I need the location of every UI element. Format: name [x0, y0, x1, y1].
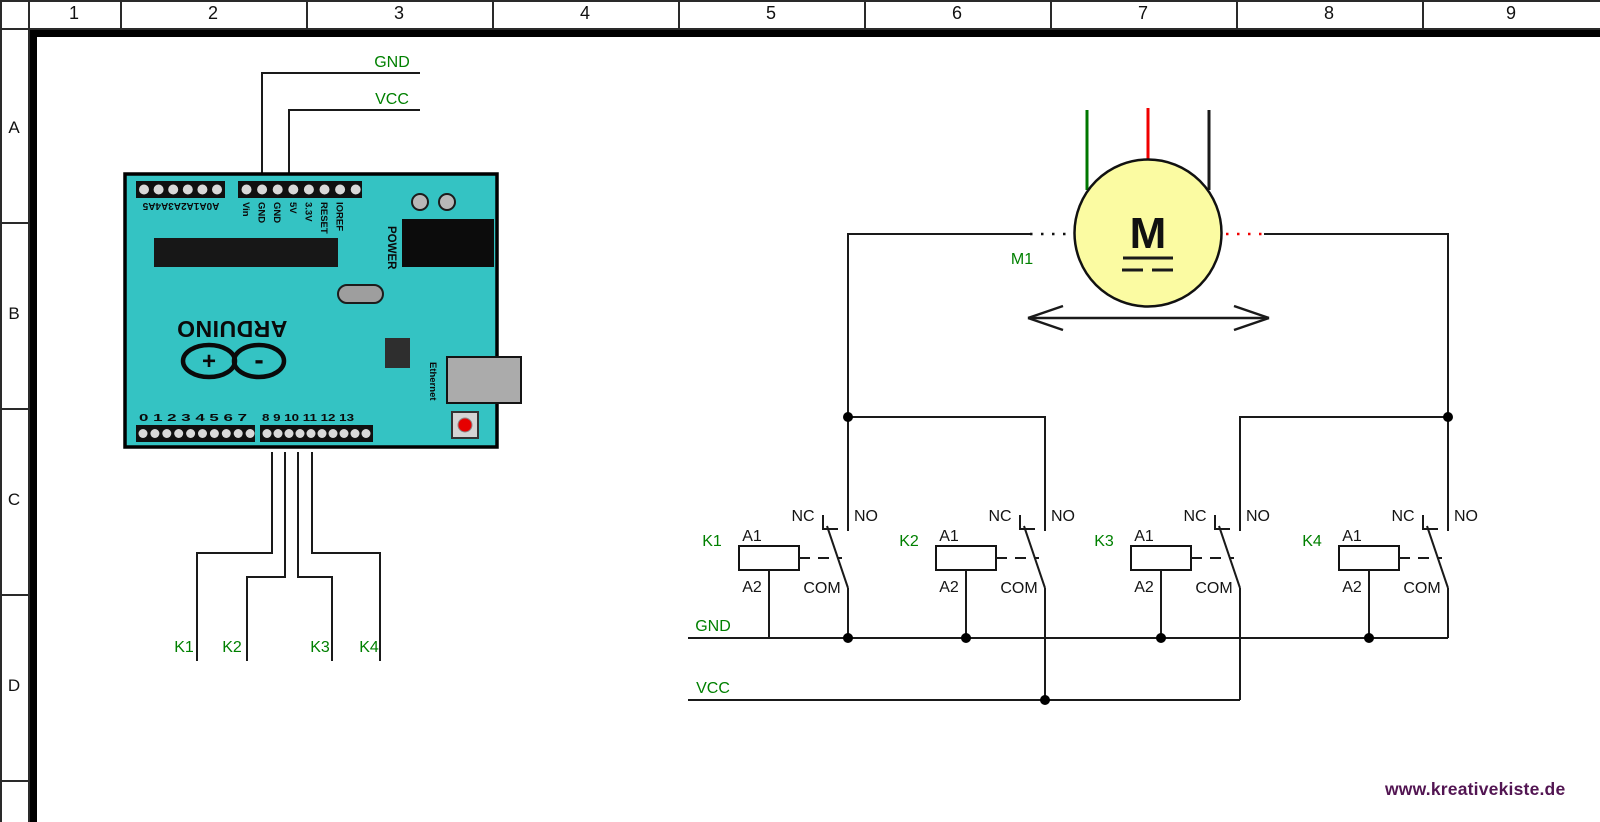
nc-contact [1020, 515, 1035, 529]
nc-label: NC [988, 508, 1011, 525]
wire-label-k1: K1 [174, 639, 194, 656]
pin-label-gnd1: GND [256, 202, 267, 223]
coil-a1: A1 [1134, 528, 1154, 545]
reset-button [458, 418, 472, 432]
logo-minus: - [254, 344, 263, 375]
junction-dot [961, 633, 971, 643]
capacitor-right [439, 194, 455, 210]
coil [1131, 546, 1191, 570]
wire-label-k3: K3 [310, 639, 330, 656]
coil [936, 546, 996, 570]
gnd-wire-label: GND [374, 54, 410, 71]
circuit-schematic: GND VCC A0A1A2A3A4A5 Vin GND GN [0, 0, 1600, 822]
com-label: COM [803, 580, 840, 597]
arduino-supply-wires: GND VCC [262, 54, 420, 175]
com-label: COM [1195, 580, 1232, 597]
motor: M M1 [1011, 108, 1269, 330]
junction-dot [843, 633, 853, 643]
pin-label-vin: Vin [240, 202, 251, 217]
no-label: NO [1454, 508, 1478, 525]
usb-block [402, 219, 494, 267]
pin-label-reset: RESET [318, 202, 329, 234]
ethernet-jack [447, 357, 521, 403]
analog-pin-labels: A0A1A2A3A4A5 [142, 200, 219, 211]
junction-dot [1040, 695, 1050, 705]
vcc-wire [289, 110, 420, 175]
nc-contact [1215, 515, 1230, 529]
wire-k2 [247, 452, 285, 661]
relay-drive-wires: K1 K2 K3 K4 [174, 452, 380, 661]
pin-label-gnd2: GND [271, 202, 282, 223]
nc-contact [1423, 515, 1438, 529]
relay-name: K2 [899, 533, 919, 550]
junction-dot [1156, 633, 1166, 643]
com-label: COM [1000, 580, 1037, 597]
vcc-rail-label: VCC [696, 680, 730, 697]
coil-a2: A2 [1342, 579, 1362, 596]
power-rails: GND VCC [688, 618, 1448, 705]
digital-pin-numbers-left: 0 1 2 3 4 5 6 7 [139, 412, 247, 424]
coil-a2: A2 [939, 579, 959, 596]
wire-k3 [298, 452, 332, 661]
switch-arm [1024, 526, 1045, 588]
relay-k3: K3 A1 A2 NC NO COM [1094, 508, 1270, 638]
motor-left-branch [848, 234, 1030, 531]
logo-plus: + [202, 348, 216, 375]
socket-strip [154, 238, 338, 267]
relay-k2: K2 A1 A2 NC NO COM [899, 508, 1075, 638]
no-label: NO [1246, 508, 1270, 525]
gnd-rail-label: GND [695, 618, 731, 635]
wire-k1 [197, 452, 272, 661]
vcc-wire-label: VCC [375, 91, 409, 108]
switch-arm [1427, 526, 1448, 588]
relay-k4: K4 A1 A2 NC NO COM [1302, 508, 1478, 638]
pin-label-3v3: 3.3V [302, 202, 313, 222]
coil-a1: A1 [939, 528, 959, 545]
no-label: NO [854, 508, 878, 525]
icsp-block [385, 338, 410, 368]
wire-k4 [312, 452, 380, 661]
com-label: COM [1403, 580, 1440, 597]
wire-label-k4: K4 [359, 639, 379, 656]
switch-arm [1219, 526, 1240, 588]
watermark: www.kreativekiste.de [1385, 779, 1585, 800]
relay-name: K4 [1302, 533, 1322, 550]
pin-label-5v: 5V [287, 202, 298, 214]
arduino-brand: ARDUINO [177, 316, 288, 342]
pin-label-ioref: IOREF [334, 202, 345, 231]
k3-no-branch [1240, 417, 1448, 531]
ethernet-label: Ethernet [427, 362, 438, 401]
nc-label: NC [791, 508, 814, 525]
gnd-wire [262, 73, 420, 175]
coil-a2: A2 [1134, 579, 1154, 596]
nc-contact [823, 515, 838, 529]
junction-dot [1364, 633, 1374, 643]
coil [1339, 546, 1399, 570]
junction-dot [1443, 412, 1453, 422]
junction-dot [843, 412, 853, 422]
wire-label-k2: K2 [222, 639, 242, 656]
coil [739, 546, 799, 570]
no-label: NO [1051, 508, 1075, 525]
coil-a2: A2 [742, 579, 762, 596]
digital-pin-numbers-right: 8 9 10 11 12 13 [262, 412, 354, 424]
coil-a1: A1 [742, 528, 762, 545]
analog-header [136, 181, 225, 198]
motor-right-branch [1264, 234, 1448, 531]
relay-name: K3 [1094, 533, 1114, 550]
motor-designator: M1 [1011, 251, 1033, 268]
nc-label: NC [1391, 508, 1414, 525]
direction-arrow [1028, 306, 1269, 330]
capacitor-left [412, 194, 428, 210]
switch-arm [827, 526, 848, 588]
coil-a1: A1 [1342, 528, 1362, 545]
arduino-board: A0A1A2A3A4A5 Vin GND GND 5V 3.3V RESET I… [125, 174, 521, 447]
relay-name: K1 [702, 533, 722, 550]
nc-label: NC [1183, 508, 1206, 525]
power-label: POWER [385, 226, 397, 270]
motor-symbol: M [1130, 209, 1167, 258]
reset-capsule [338, 285, 383, 303]
schematic-page: 1 2 3 4 5 6 7 8 9 A B C D GND VCC [0, 0, 1600, 822]
